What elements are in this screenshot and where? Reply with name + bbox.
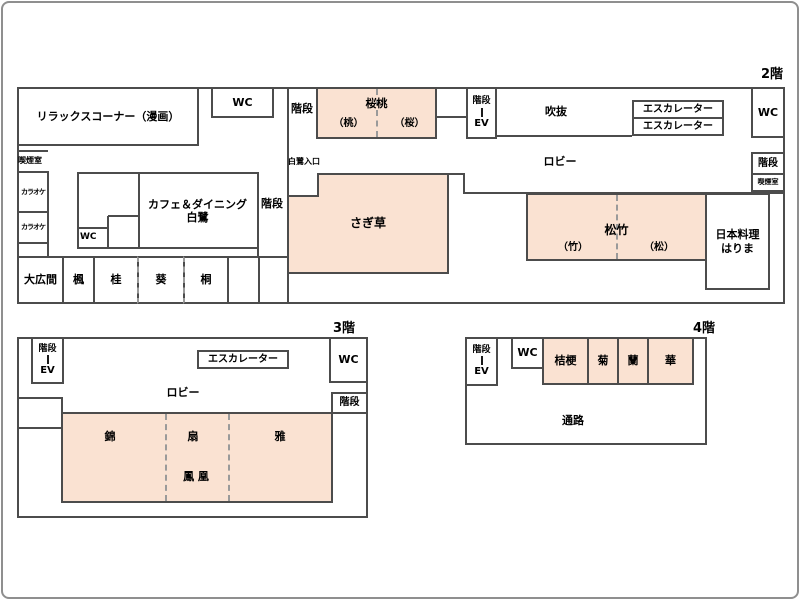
stairs-right-3f: 階段 [331,392,368,414]
atrium-label: 吹抜 [528,104,584,119]
stairs-ev-4f-stairs: 階段 [472,345,490,356]
banquet-divider-1 [165,414,167,501]
wc-3f: WC [329,337,368,383]
small-room-left-3f [17,397,63,429]
banquet-room-3f [61,412,333,503]
ev-connector-line [47,355,49,364]
room-aoi: 葵 [137,256,185,304]
room-take-label: （竹） [548,241,598,255]
floor3-title: 3階 [295,320,355,337]
room-outo-label: 桜桃 [316,96,437,111]
restaurant-harima-line1: 日本料理 [716,228,760,241]
lobby-2f-label: ロビー [532,154,588,169]
hakuro-entrance-label: 白鷺入口 [288,156,340,168]
floor2-title: 2階 [715,66,783,84]
room-hoo-label: 鳳 凰 [164,469,228,485]
stairs-right-2f: 階段 [751,152,785,175]
room-nishiki-label: 錦 [86,429,134,445]
smoking-room-left-label: 喫煙室 [18,155,54,167]
room-momo-label: （桃） [321,117,376,131]
stairs-ev-2f-stairs: 階段 [472,96,490,107]
lobby-3f-label: ロビー [155,385,211,400]
stairs-ev-3f-ev: EV [40,365,55,377]
banquet-divider-2 [228,414,230,501]
passage-label: 通路 [545,413,601,429]
cafe-dining-line2: 白鷺 [187,211,209,224]
room-katsura: 桂 [93,256,139,304]
stairs-mid-label: 階段 [256,196,288,211]
floor4-title: 4階 [655,320,715,337]
room-miyabi-label: 雅 [256,429,304,445]
room-kaede: 楓 [62,256,95,304]
stairs-ev-3f: 階段 EV [31,337,64,384]
room-sagikusa-label: さぎ草 [328,214,408,232]
stairs-ev-3f-stairs: 階段 [38,344,56,355]
ev-connector-line [481,108,483,117]
room-kikyo: 桔梗 [542,337,589,385]
room-relax-corner: リラックスコーナー（漫画） [17,87,199,146]
cafe-dining-label: カフェ＆ダイニング 白鷺 [135,194,260,228]
cafe-dining-line1: カフェ＆ダイニング [148,198,247,211]
room-kiku: 菊 [587,337,619,385]
stairs-ev-2f-ev: EV [474,118,489,130]
room-shochiku-label: 松竹 [526,222,707,238]
room-unlabeled-1 [227,256,260,304]
room-unlabeled-2 [258,256,289,304]
floor-plan-page: 2階 リラックスコーナー（漫画） WC 階段 桜桃 （桃） （桜） 階段 EV … [0,0,800,600]
wc-top-right: WC [751,87,785,138]
room-ohiroma: 大広間 [17,256,64,304]
wc-top-left: WC [211,87,274,118]
room-ogi-label: 扇 [169,429,217,445]
cafe-wc-label: WC [80,229,108,245]
escalator-3f: エスカレーター [197,350,289,369]
restaurant-harima-line2: はりま [721,242,754,255]
escalator-2f-2: エスカレーター [632,117,724,136]
stairs-ev-2f: 階段 EV [466,87,497,139]
room-matsu-label: （松） [634,241,684,255]
stairs-ev-4f: 階段 EV [465,337,498,386]
room-kiri: 桐 [183,256,229,304]
room-sakura-label: （桜） [382,117,437,131]
karaoke-room-1: カラオケ [17,171,49,213]
restaurant-harima: 日本料理 はりま [705,193,770,290]
smoking-room-right: 喫煙室 [751,173,785,192]
ev-connector-line [481,356,483,365]
room-ran: 蘭 [617,337,649,385]
wc-4f: WC [511,337,544,369]
room-hana: 華 [647,337,694,385]
stairs-ev-4f-ev: EV [474,366,489,378]
karaoke-room-2: カラオケ [17,211,49,244]
stairs-top-label: 階段 [286,101,318,116]
